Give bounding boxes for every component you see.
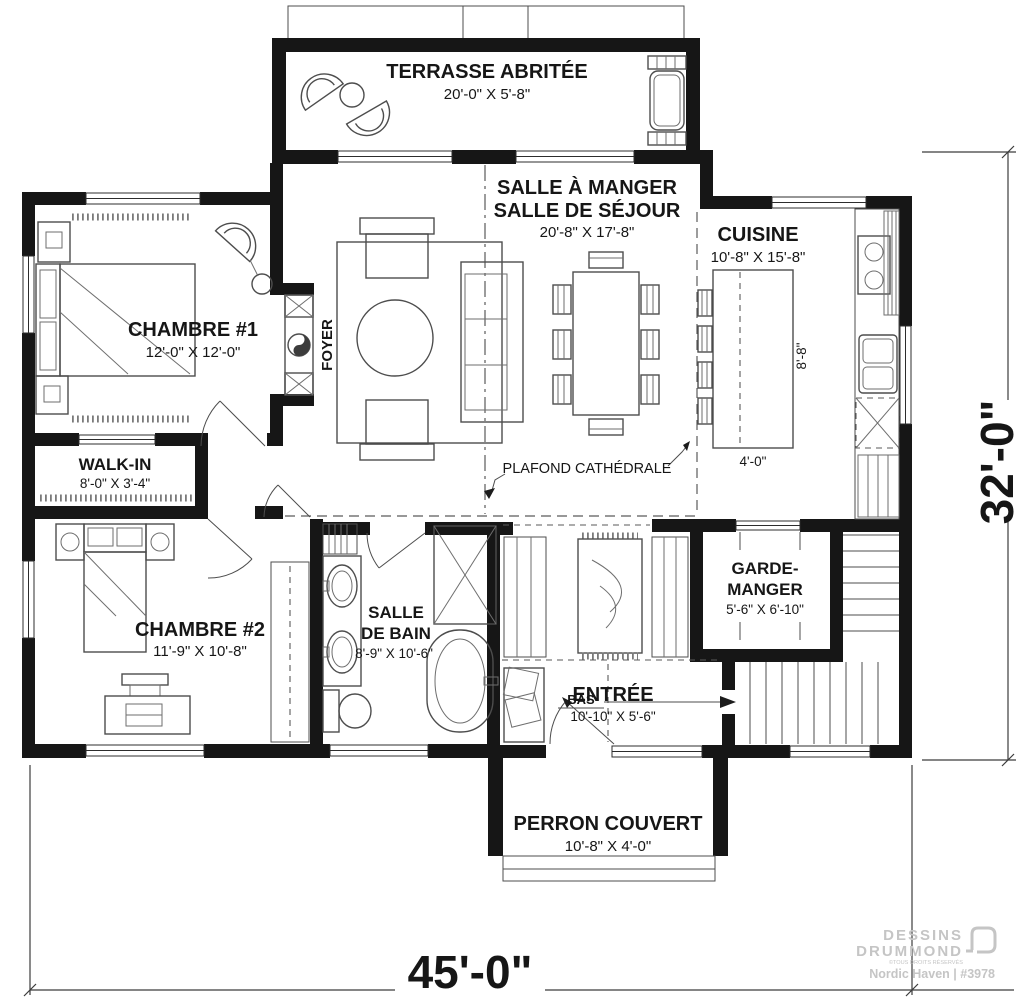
overall-width: 45'-0" (408, 946, 533, 997)
floor-plan-drawing: TERRASSE ABRITÉE 20'-0" X 5'-8" SALLE À … (0, 0, 1024, 997)
bain-label-2: DE BAIN (361, 624, 431, 643)
dining-chair (589, 419, 623, 435)
area-rug (337, 242, 502, 443)
room-labels: TERRASSE ABRITÉE 20'-0" X 5'-8" SALLE À … (79, 60, 806, 855)
brand-rights: ©TOUS DROITS RÉSERVÉS (889, 959, 963, 966)
brand-watermark: DESSINS DRUMMOND ©TOUS DROITS RÉSERVÉS N… (856, 927, 995, 981)
island-width-label: 4'-0" (740, 454, 767, 469)
brand-logo-icon (972, 928, 995, 952)
chambre1-label: CHAMBRE #1 (128, 319, 258, 341)
dining-chair (553, 285, 571, 314)
bench (504, 668, 544, 742)
patio-chair-icon (292, 65, 343, 110)
walkin-dims: 8'-0" X 3'-4" (80, 476, 150, 491)
sofa (461, 262, 523, 422)
bain-dims: 8'-9" X 10'-6" (355, 646, 433, 661)
garde-label-1: GARDE- (731, 559, 798, 578)
stool (698, 290, 712, 316)
perron-label: PERRON COUVERT (514, 813, 703, 835)
brand-name-2: DRUMMOND (856, 943, 963, 960)
stool (698, 398, 712, 424)
walls (22, 38, 912, 856)
nightstand (56, 524, 84, 560)
nightstand (38, 222, 70, 262)
armchair (366, 400, 428, 444)
dining-chair (641, 330, 659, 359)
stool (698, 326, 712, 352)
toilet-bowl (339, 694, 371, 728)
fireplace (285, 295, 313, 395)
sejour-label-2: SALLE DE SÉJOUR (494, 199, 681, 222)
pillow (505, 693, 541, 727)
bas-label: BAS (567, 692, 595, 707)
hall-closet (652, 537, 688, 657)
desk-chair (122, 674, 168, 685)
patio-side-table (340, 83, 364, 107)
plan-name: Nordic Haven | #3978 (869, 967, 995, 981)
round-coffee-table (357, 300, 433, 376)
garde-dims: 5'-6" X 6'-10" (726, 602, 804, 617)
hallway (504, 536, 688, 657)
overall-depth: 32'-0" (971, 400, 1023, 525)
plafond-label: PLAFOND CATHÉDRALE (503, 460, 672, 477)
hall-closet (504, 537, 546, 657)
bathtub (427, 630, 493, 732)
porch-steps (503, 856, 715, 881)
dining-table (573, 272, 639, 415)
chambre2-dims: 11'-9" X 10'-8" (153, 643, 247, 660)
bedroom1-furniture (36, 214, 272, 419)
sejour-dims: 20'-8" X 17'-8" (540, 224, 635, 241)
side-table (252, 274, 272, 294)
cooktop (858, 236, 890, 294)
kitchen-sink (859, 335, 897, 393)
terrasse-dims: 20'-0" X 5'-8" (444, 86, 530, 103)
hall-rug (578, 539, 642, 653)
dining-chair (553, 375, 571, 404)
garde-label-2: MANGER (727, 580, 803, 599)
foyer-label: FOYER (319, 319, 336, 371)
cuisine-dims: 10'-8" X 15'-8" (711, 249, 806, 266)
brand-name-1: DESSINS (883, 927, 963, 944)
armchair (360, 218, 434, 234)
door-swings (201, 401, 614, 744)
chambre2-label: CHAMBRE #2 (135, 619, 265, 641)
patio-chair (648, 56, 686, 69)
nightstand (146, 524, 174, 560)
kitchen-island (713, 270, 793, 448)
dining-chair (589, 252, 623, 268)
chambre1-dims: 12'-0" X 12'-0" (146, 344, 241, 361)
toilet-tank (323, 690, 339, 732)
dining-chair (641, 375, 659, 404)
bain-label-1: SALLE (368, 603, 424, 622)
sejour-label-1: SALLE À MANGER (497, 176, 678, 199)
terrasse-label: TERRASSE ABRITÉE (386, 60, 588, 83)
open-deck-outline (288, 6, 684, 39)
island-length-label: 8'-8" (794, 342, 809, 369)
dining-chair (641, 285, 659, 314)
bedroom-chair-icon (216, 214, 266, 262)
perron-dims: 10'-8" X 4'-0" (565, 838, 651, 855)
entry-furniture (503, 667, 544, 742)
entree-dims: 10'-10" X 5'-6" (570, 709, 655, 724)
cuisine-label: CUISINE (717, 224, 798, 246)
stool (698, 362, 712, 388)
dashed-lines (285, 165, 740, 742)
nightstand (36, 376, 68, 414)
living-room-furniture (337, 218, 659, 460)
patio-table (650, 71, 684, 130)
patio-chair (648, 132, 686, 145)
dining-chair (553, 330, 571, 359)
floor-plan-page: TERRASSE ABRITÉE 20'-0" X 5'-8" SALLE À … (0, 0, 1024, 997)
walkin-label: WALK-IN (79, 455, 152, 474)
